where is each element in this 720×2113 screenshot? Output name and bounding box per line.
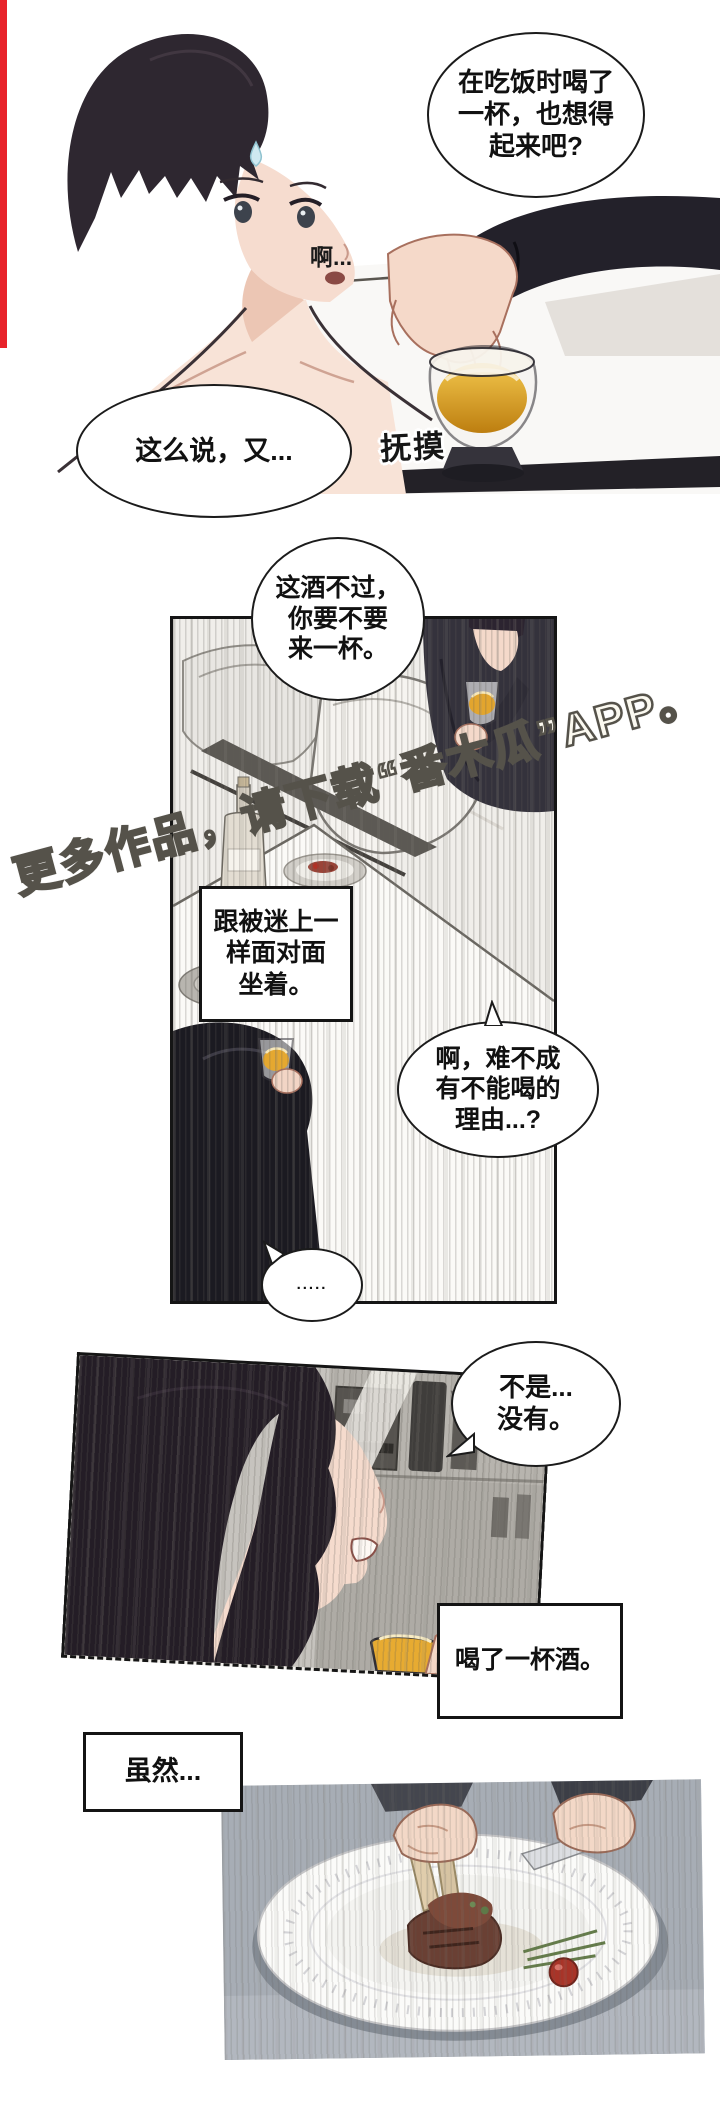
speech-bubble-so-again-text: 这么说，又... bbox=[135, 435, 293, 468]
sfx-stroke-text: 抚摸 bbox=[379, 420, 447, 468]
caption-box-although: 虽然... bbox=[83, 1732, 243, 1812]
speech-bubble-so-again: 这么说，又... bbox=[76, 384, 352, 518]
panel4-artwork bbox=[221, 1779, 705, 2060]
panel4-plate-scene bbox=[221, 1779, 705, 2060]
tomato bbox=[549, 1958, 577, 1986]
bubble-silence-tail bbox=[262, 1240, 288, 1266]
plate-1 bbox=[284, 854, 366, 888]
canister bbox=[408, 1381, 447, 1473]
caption-box-sitting: 跟被迷上一 样面对面 坐着。 bbox=[199, 886, 353, 1022]
bubble-reply-tail bbox=[446, 1428, 476, 1458]
red-accent-bar bbox=[0, 0, 7, 348]
bubble-question-tail bbox=[482, 1000, 508, 1026]
speech-bubble-dinner-text: 在吃饭时喝了 一杯，也想得 起来吧? bbox=[458, 67, 614, 162]
speech-bubble-reply: 不是... 没有。 bbox=[451, 1341, 621, 1467]
speech-bubble-offer: 这酒不过， 你要不要 来一杯。 bbox=[251, 537, 425, 701]
right-hand bbox=[553, 1793, 635, 1853]
man3-hair bbox=[64, 1355, 343, 1668]
speech-bubble-dinner: 在吃饭时喝了 一杯，也想得 起来吧? bbox=[427, 32, 645, 198]
caption-box-drank: 喝了一杯酒。 bbox=[437, 1603, 623, 1719]
speech-bubble-question: 啊，难不成 有不能喝的 理由...? bbox=[397, 1021, 599, 1158]
comic-page: 在吃饭时喝了 一杯，也想得 起来吧? 啊... 这么说，又... 抚摸 bbox=[0, 0, 720, 2113]
murmur-text: 啊... bbox=[310, 238, 352, 272]
